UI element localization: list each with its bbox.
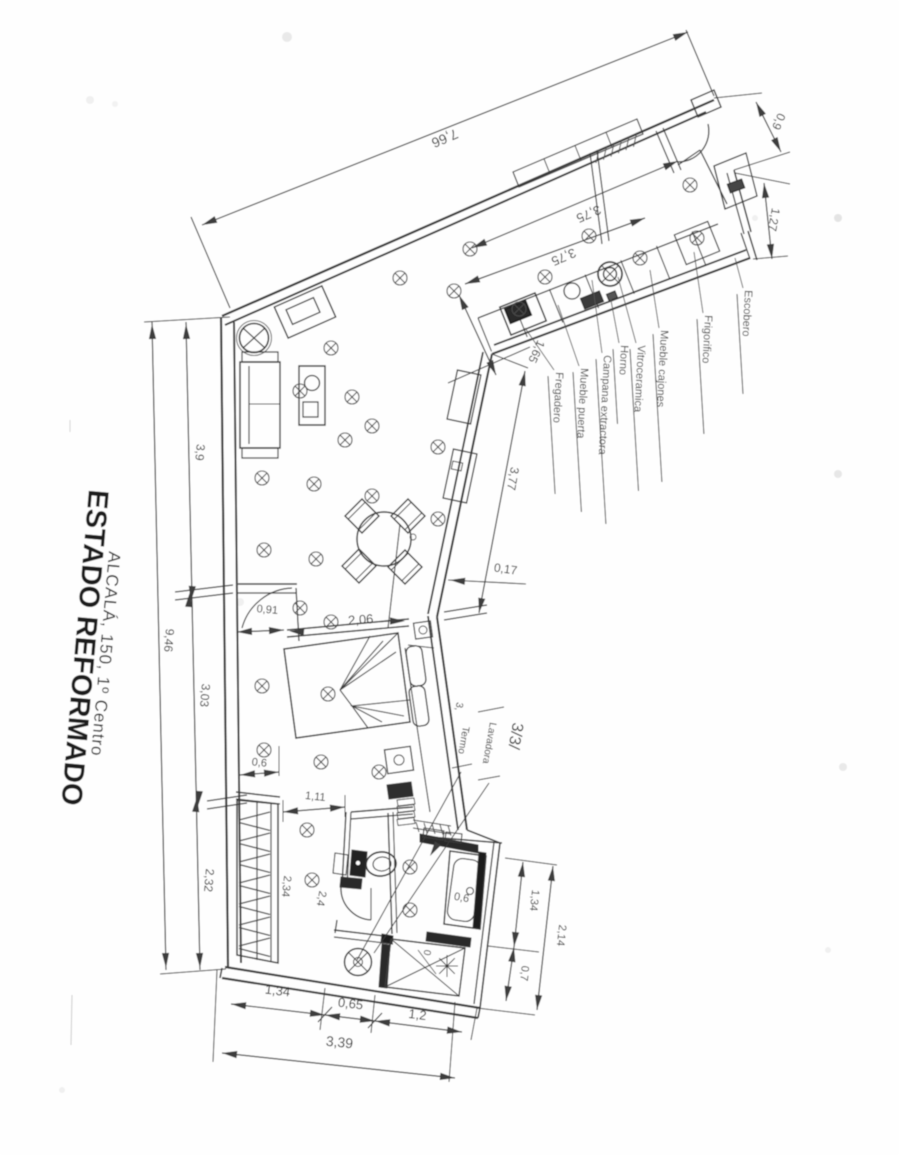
svg-text:0,65: 0,65 [337, 995, 364, 1013]
svg-text:0,7: 0,7 [517, 965, 531, 981]
svg-text:2,32: 2,32 [201, 868, 217, 893]
svg-text:9,46: 9,46 [161, 628, 177, 653]
svg-text:0,91: 0,91 [256, 603, 278, 617]
svg-text:2,06: 2,06 [348, 611, 374, 628]
svg-text:3,9: 3,9 [192, 443, 207, 461]
svg-text:1,34: 1,34 [527, 889, 541, 912]
svg-text:1,2: 1,2 [408, 1006, 428, 1023]
svg-text:Frigorifico: Frigorifico [699, 315, 714, 364]
svg-text:Escobero: Escobero [740, 290, 754, 337]
svg-text:3,39: 3,39 [325, 1033, 354, 1052]
svg-text:1,34: 1,34 [264, 982, 291, 1000]
svg-text:2,34: 2,34 [279, 875, 293, 898]
svg-text:3,03: 3,03 [197, 683, 213, 708]
svg-text:1,11: 1,11 [304, 790, 326, 804]
svg-text:0,6: 0,6 [251, 756, 267, 770]
svg-text:Horno: Horno [616, 345, 630, 376]
svg-text:2,14: 2,14 [554, 924, 568, 947]
